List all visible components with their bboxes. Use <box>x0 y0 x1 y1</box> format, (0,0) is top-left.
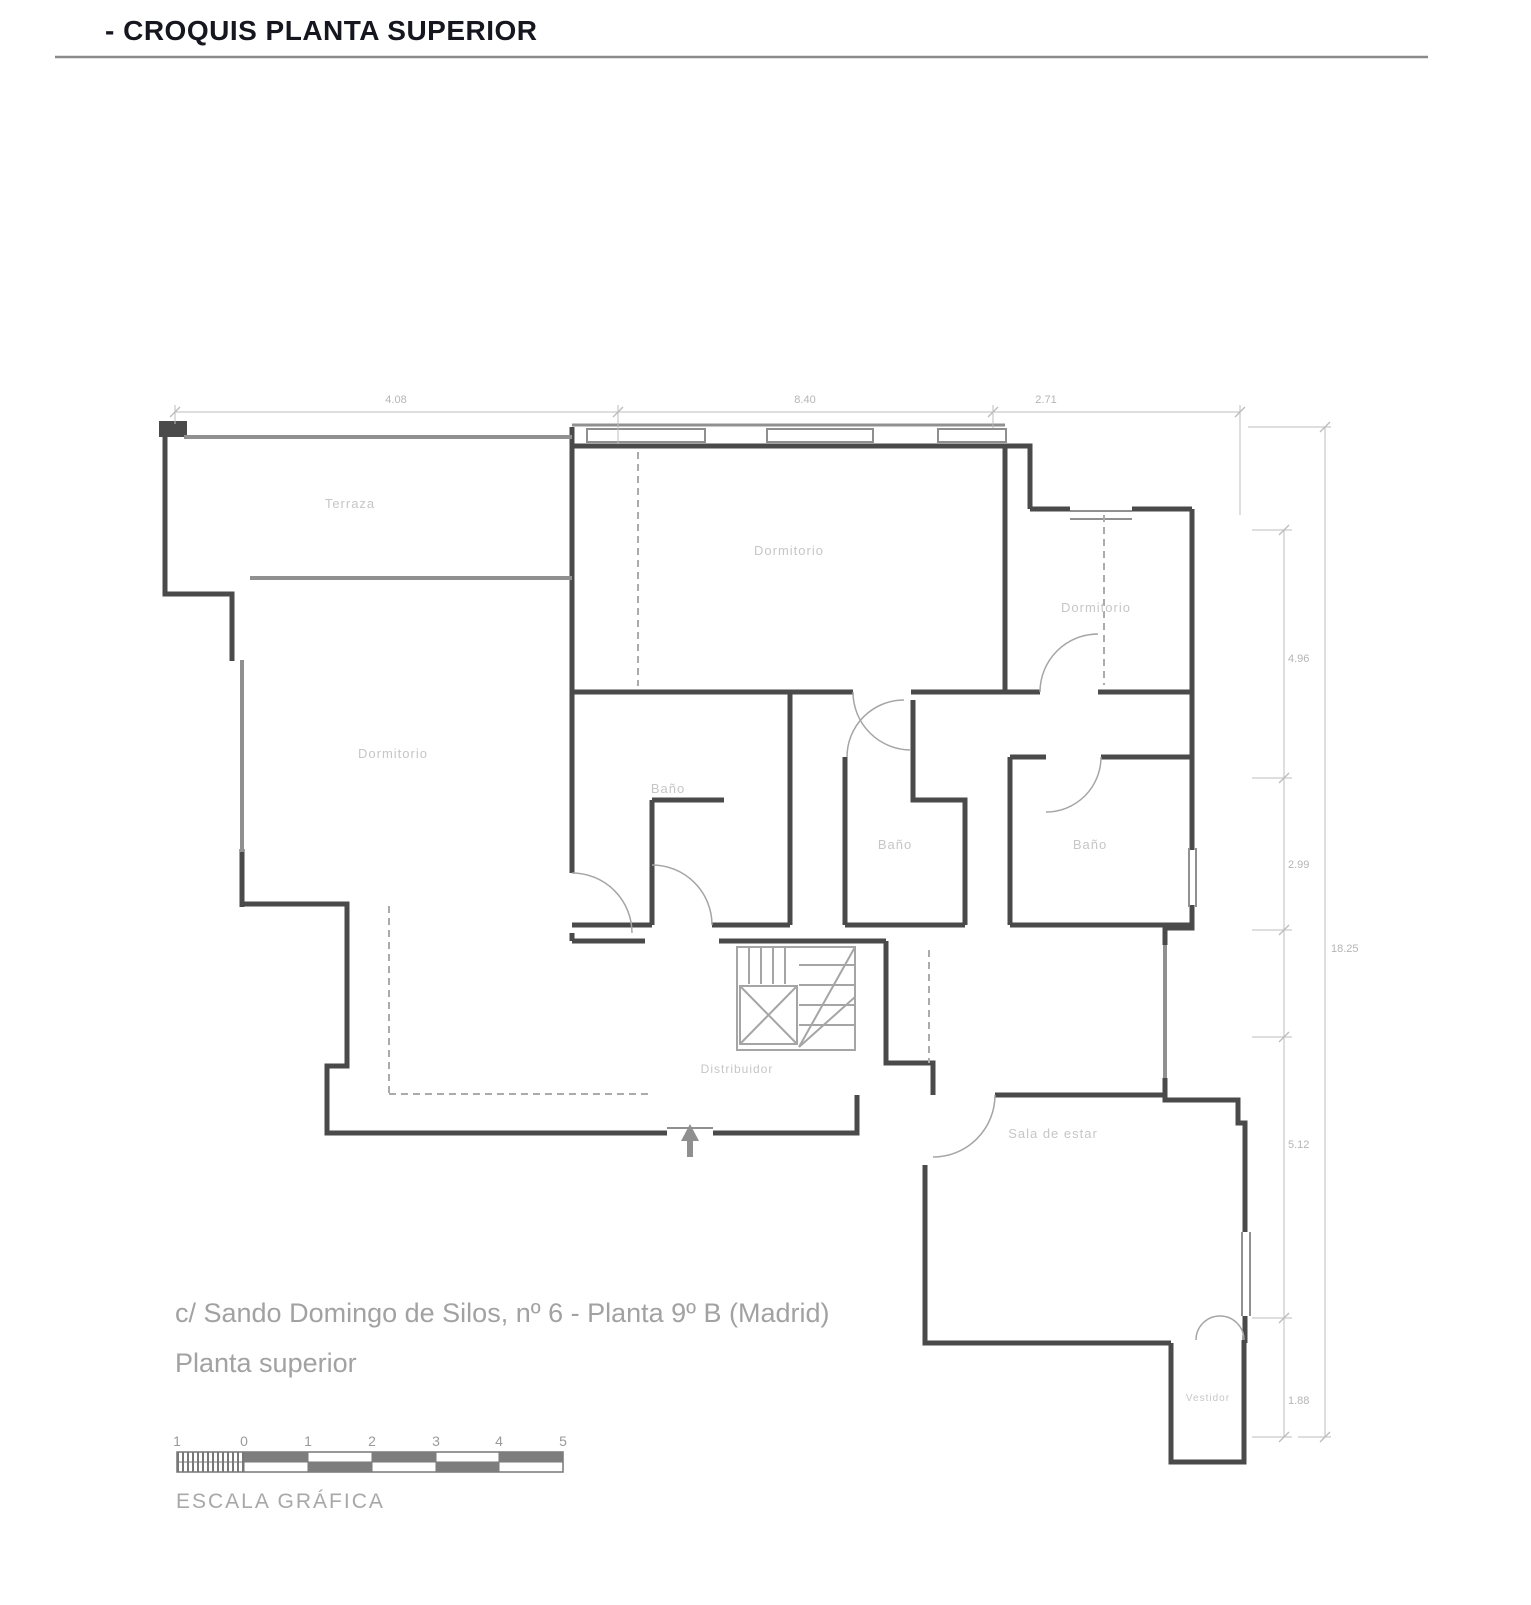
french-door-arc-icon <box>1220 1316 1244 1340</box>
floor-plan-canvas: - CROQUIS PLANTA SUPERIOR <box>0 0 1531 1600</box>
window-sala <box>1242 1232 1250 1316</box>
room-label-bano-center: Baño <box>878 837 912 852</box>
stair-winders <box>799 947 855 1047</box>
entry-right-wall <box>713 1095 857 1133</box>
room-label-sala: Sala de estar <box>1008 1126 1098 1141</box>
scale-tick-label: 0 <box>240 1433 248 1449</box>
dim-label: 8.40 <box>794 394 815 406</box>
dorm-right-entry-notch <box>1005 446 1030 509</box>
walls-grey <box>184 425 1250 1316</box>
scale-fill <box>308 1462 372 1472</box>
dim-label: 2.99 <box>1288 859 1309 871</box>
room-label-bano-left: Baño <box>651 781 685 796</box>
scale-tick-label: 2 <box>368 1433 376 1449</box>
scale-caption: ESCALA GRÁFICA <box>176 1490 385 1513</box>
door-arc-icon <box>652 865 712 925</box>
scale-tick-label: 1 <box>304 1433 312 1449</box>
window-icon <box>767 429 873 442</box>
scale-tick-label: 3 <box>432 1433 440 1449</box>
scale-tick-label: 1 <box>173 1433 181 1449</box>
scale-fill <box>372 1452 436 1462</box>
room-label-terraza: Terraza <box>325 496 375 511</box>
scale-tick-label: 4 <box>495 1433 503 1449</box>
wardrobe-dashed-left <box>389 906 651 1094</box>
window-icon <box>587 429 705 442</box>
entry-arrow-head <box>681 1124 699 1141</box>
dim-extensions-right <box>1252 530 1292 1437</box>
terraza-left-wall <box>165 427 232 661</box>
stair-right-wall <box>886 941 933 1095</box>
room-label-dormitorio-left: Dormitorio <box>358 746 428 761</box>
dim-label: 4.96 <box>1288 653 1309 665</box>
dimension-labels: 4.08 8.40 2.71 4.96 2.99 5.12 1.88 18.25 <box>385 394 1358 1407</box>
door-arc-icon <box>1046 757 1101 812</box>
entry-arrow-stem <box>687 1141 693 1157</box>
dim-label: 5.12 <box>1288 1139 1309 1151</box>
top-windows <box>587 429 1006 442</box>
scale-fill <box>499 1452 563 1462</box>
door-arc-icon <box>1040 634 1098 692</box>
scale-fill <box>244 1452 308 1462</box>
room-label-vestidor: Vestidor <box>1186 1393 1230 1404</box>
scale-tick-label: 5 <box>559 1433 567 1449</box>
room-label-dormitorio-right: Dormitorio <box>1061 600 1131 615</box>
window-bano-right <box>1189 848 1196 907</box>
room-labels: Terraza Dormitorio Dormitorio Dormitorio… <box>325 496 1230 1404</box>
room-label-distribuidor: Distribuidor <box>701 1062 774 1076</box>
door-arc-icon <box>933 1095 995 1157</box>
dim-extensions-right-outer <box>1248 427 1331 1437</box>
scale-bar-fills <box>244 1452 563 1472</box>
stair-treads-top <box>749 947 785 984</box>
french-door-arc-icon <box>1196 1316 1220 1340</box>
bottom-left-wall <box>242 904 667 1133</box>
dashed-lines <box>389 452 1104 1094</box>
corner-pillar <box>159 421 187 437</box>
scale-numbers: 1 0 1 2 3 4 5 <box>173 1433 567 1449</box>
staircase <box>737 947 855 1050</box>
bano-center-step-wall <box>913 700 965 925</box>
window-right-room <box>1070 511 1132 519</box>
scale-fill <box>436 1462 499 1472</box>
scale-bar: 1 0 1 2 3 4 5 ESCALA GRÁFICA <box>173 1433 567 1513</box>
floor-plan-page: - CROQUIS PLANTA SUPERIOR <box>0 0 1531 1605</box>
page-title: - CROQUIS PLANTA SUPERIOR <box>105 15 538 46</box>
bano-left-nook <box>652 800 724 925</box>
dim-label-total: 18.25 <box>1331 943 1359 955</box>
door-arcs <box>572 634 1244 1340</box>
dim-label: 2.71 <box>1035 394 1056 406</box>
dim-label: 4.08 <box>385 394 406 406</box>
room-label-bano-right: Baño <box>1073 837 1107 852</box>
sala-left-bottom-wall <box>925 1165 1171 1343</box>
stair-void-cross-icon <box>740 986 797 1044</box>
floor-line: Planta superior <box>175 1348 357 1378</box>
room-label-dormitorio-top: Dormitorio <box>754 543 824 558</box>
window-icon <box>938 429 1006 442</box>
address-line: c/ Sando Domingo de Silos, nº 6 - Planta… <box>175 1298 830 1328</box>
dim-label: 1.88 <box>1288 1395 1309 1407</box>
sala-right-step-wall <box>1165 1078 1245 1232</box>
